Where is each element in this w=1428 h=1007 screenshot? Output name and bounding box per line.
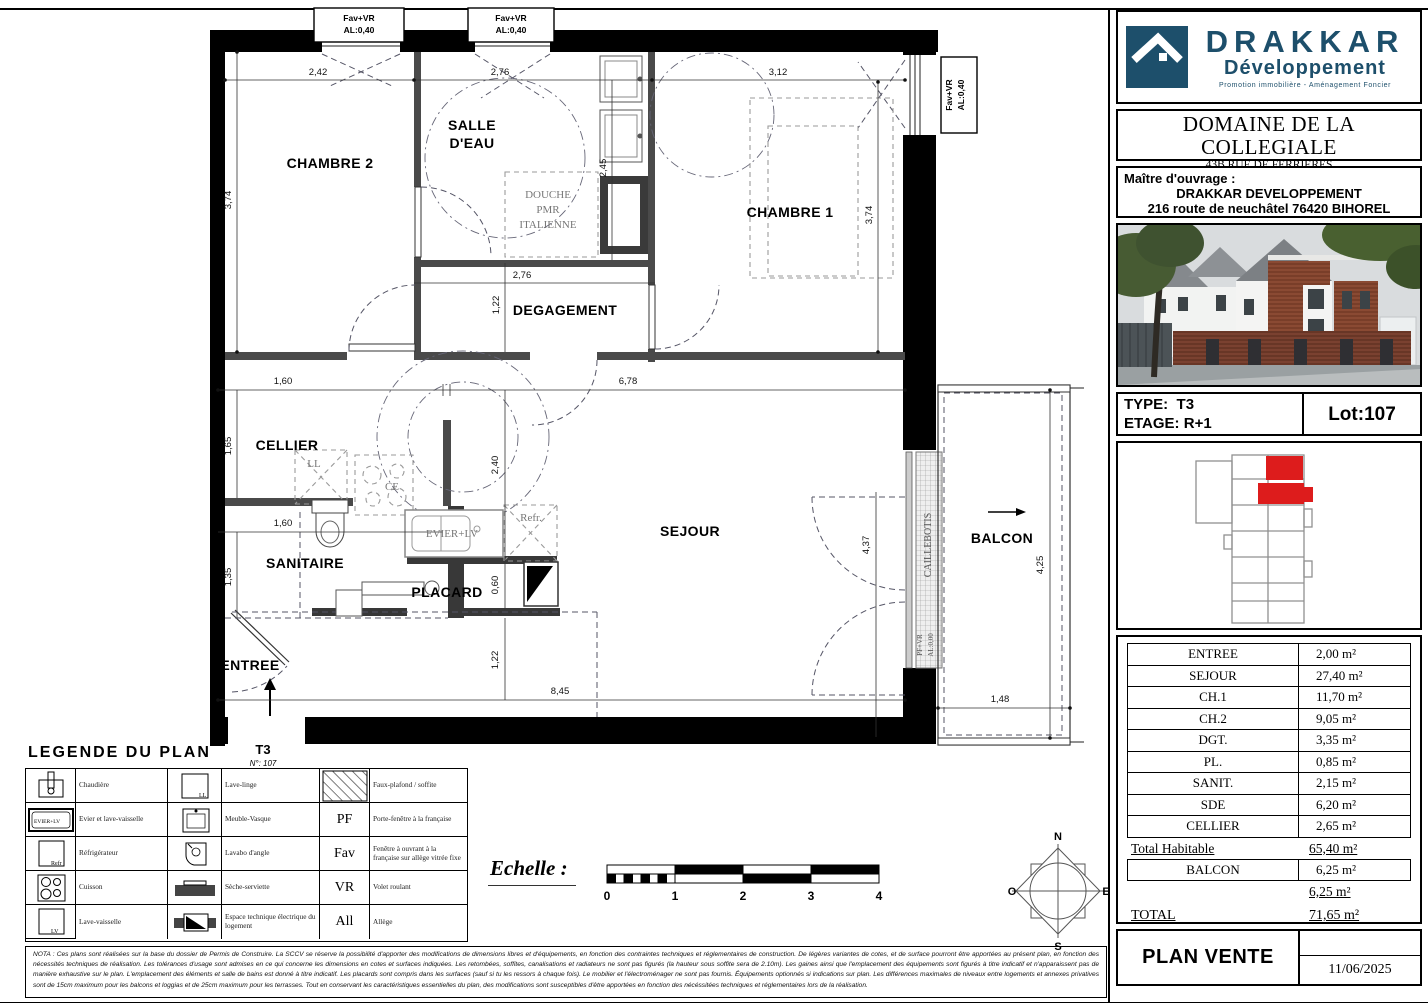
svg-text:2: 2 (740, 889, 747, 903)
dimension-lines (216, 50, 1072, 740)
window-label: AL:0,40 (496, 25, 527, 35)
document-title-box: PLAN VENTE 11/06/2025 (1116, 929, 1422, 986)
lot-number: Lot:107 (1302, 394, 1420, 436)
svg-text:LL: LL (307, 458, 321, 470)
svg-text:LL: LL (199, 793, 207, 799)
svg-text:Refr.: Refr. (520, 512, 542, 524)
svg-text:2,42: 2,42 (309, 67, 328, 78)
type-value: T3 (1177, 396, 1195, 415)
svg-text:1,35: 1,35 (223, 568, 234, 587)
legend-label: Meuble-Vasque (222, 803, 320, 837)
svg-text:1,60: 1,60 (274, 518, 293, 529)
type-label: TYPE: (1124, 396, 1168, 415)
logo-tagline: Promotion immobilière - Aménagement Fonc… (1219, 82, 1391, 89)
fridge-icon: Refr (26, 837, 76, 871)
table-row: DGT.3,35 m² (1127, 729, 1411, 752)
annex-total-row: 6,25 m² (1127, 881, 1411, 903)
svg-text:DOUCHE: DOUCHE (525, 189, 571, 201)
svg-text:2,76: 2,76 (513, 270, 532, 281)
key-plan (1116, 441, 1422, 630)
legend-title: LEGENDE DU PLAN (28, 744, 211, 762)
svg-text:1,22: 1,22 (491, 296, 502, 315)
drakkar-house-icon (1126, 26, 1188, 88)
washer-icon: LL (168, 769, 222, 803)
window-label: AL:0,40 (956, 79, 966, 110)
legend-label: Porte-fenêtre à la française (370, 803, 467, 837)
legend-label: Chaudière (76, 769, 168, 803)
svg-text:2,45: 2,45 (598, 159, 609, 178)
windows: Fav+VR AL:0,40 Fav+VR AL:0,40 Fav+VR AL:… (314, 8, 977, 135)
room-label-salle-eau: SALLE (448, 117, 496, 133)
owner-name: DRAKKAR DEVELOPPEMENT (1124, 186, 1414, 201)
exterior-walls (210, 30, 938, 746)
scale-bar: 0 1 2 3 4 (600, 862, 900, 912)
document-date: 11/06/2025 (1300, 956, 1420, 984)
window-label: Fav+VR (495, 13, 526, 23)
balcon-row: BALCON6,25 m² (1127, 859, 1411, 882)
legend-label: Sèche-serviette (222, 871, 320, 905)
owner-label: Maître d'ouvrage : (1124, 171, 1414, 186)
room-label-entree: ENTREE (220, 657, 279, 673)
pf-symbol: PF (320, 803, 370, 837)
svg-text:CAILLEBOTIS: CAILLEBOTIS (923, 513, 934, 577)
vanity-icon (168, 803, 222, 837)
total-habitable-row: Total Habitable65,40 m² (1127, 838, 1411, 860)
svg-text:LV: LV (51, 929, 59, 935)
company-logo: DRAKKAR Développement Promotion immobili… (1116, 10, 1422, 104)
room-label-chambre2: CHAMBRE 2 (287, 155, 374, 171)
svg-text:0,60: 0,60 (490, 576, 501, 595)
table-row: CH.29,05 m² (1127, 708, 1411, 731)
floor-plan-drawing: Fav+VR AL:0,40 Fav+VR AL:0,40 Fav+VR AL:… (0, 0, 1110, 770)
svg-text:1,60: 1,60 (274, 376, 293, 387)
fav-symbol: Fav (320, 837, 370, 871)
all-symbol: All (320, 905, 370, 939)
title-block: DRAKKAR Développement Promotion immobili… (1116, 10, 1422, 986)
unit-type-tag: T3 (255, 742, 270, 757)
window-label: Fav+VR (343, 13, 374, 23)
room-label-balcon: BALCON (971, 530, 1033, 546)
svg-text:2,76: 2,76 (491, 67, 510, 78)
electrical-space-icon (168, 905, 222, 939)
project-box: DOMAINE DE LA COLLEGIALE 43B RUE DE FERR… (1116, 109, 1422, 161)
room-label-placard: PLACARD (411, 584, 482, 600)
total-row: TOTAL71,65 m² (1127, 903, 1411, 929)
areas-table: ENTREE2,00 m² SEJOUR27,40 m² CH.111,70 m… (1116, 635, 1422, 924)
floor-label: ETAGE: (1124, 415, 1180, 434)
svg-text:1,65: 1,65 (223, 437, 234, 456)
room-label-salle-eau: D'EAU (450, 135, 495, 151)
svg-text:2,40: 2,40 (490, 456, 501, 475)
legend-label: Espace technique électrique du logement (222, 905, 320, 939)
svg-text:1: 1 (672, 889, 679, 903)
fixtures (264, 56, 1084, 745)
svg-text:4: 4 (876, 889, 883, 903)
svg-text:ITALIENNE: ITALIENNE (519, 219, 576, 231)
dishwasher-icon: LV (26, 905, 76, 939)
svg-text:3,12: 3,12 (769, 67, 788, 78)
nota-disclaimer: NOTA : Ces plans sont réalisées sur la b… (25, 946, 1107, 998)
compass-west: O (1008, 886, 1017, 898)
soffit-hatch-icon (320, 769, 370, 803)
legend-label: Cuisson (76, 871, 168, 905)
table-row: PL.0,85 m² (1127, 751, 1411, 774)
compass-rose: N S O E (1008, 828, 1110, 952)
svg-text:6,78: 6,78 (619, 376, 638, 387)
corner-basin-icon (168, 837, 222, 871)
room-label-sejour: SEJOUR (660, 523, 720, 539)
towel-dryer-icon (168, 871, 222, 905)
legend-label: Allège (370, 905, 467, 939)
boiler-icon (26, 769, 76, 803)
compass-east: E (1102, 886, 1109, 898)
table-row: SDE6,20 m² (1127, 794, 1411, 817)
balcony-arrow-icon (1016, 508, 1026, 516)
svg-text:3,74: 3,74 (223, 191, 234, 210)
svg-text:0: 0 (604, 889, 611, 903)
owner-address: 216 route de neuchâtel 76420 BIHOREL (1124, 201, 1414, 216)
legend-label: Evier et lave-vaisselle (76, 803, 168, 837)
legend-label: Faux-plafond / soffite (370, 769, 467, 803)
hob-icon (26, 871, 76, 905)
svg-text:3,74: 3,74 (864, 206, 875, 225)
scale-title: Echelle : (488, 856, 576, 886)
room-label-cellier: CELLIER (256, 437, 319, 453)
legend-table: Chaudière LL Lave-linge Faux-plafond / s… (25, 768, 468, 942)
room-label-degagement: DEGAGEMENT (513, 302, 617, 318)
table-row: SANIT.2,15 m² (1127, 772, 1411, 795)
project-name: DOMAINE DE LA COLLEGIALE (1118, 113, 1420, 159)
svg-text:EVIER+LV: EVIER+LV (426, 528, 478, 540)
floor-value: R+1 (1184, 415, 1212, 434)
legend-label: Lave-vaisselle (76, 905, 168, 939)
svg-text:EVIER+LV: EVIER+LV (34, 819, 60, 825)
table-row: CH.111,70 m² (1127, 686, 1411, 709)
vr-symbol: VR (320, 871, 370, 905)
room-label-chambre1: CHAMBRE 1 (747, 204, 834, 220)
legend-label: Fenêtre à ouvrant à la française sur all… (370, 837, 467, 871)
legend-label: Réfrigérateur (76, 837, 168, 871)
turning-circles (377, 53, 774, 523)
svg-text:1,22: 1,22 (490, 651, 501, 670)
table-row: CELLIER2,65 m² (1127, 815, 1411, 838)
window-label: AL:0,40 (344, 25, 375, 35)
table-row: ENTREE2,00 m² (1127, 643, 1411, 666)
svg-text:4,37: 4,37 (861, 536, 872, 555)
logo-name: DRAKKAR (1206, 26, 1405, 57)
svg-text:CE: CE (385, 481, 399, 493)
svg-text:PMR: PMR (536, 204, 560, 216)
document-title: PLAN VENTE (1118, 931, 1298, 984)
entrance-arrow-icon (264, 678, 276, 690)
owner-box: Maître d'ouvrage : DRAKKAR DEVELOPPEMENT… (1116, 166, 1422, 218)
legend-label: Lave-linge (222, 769, 320, 803)
logo-subtitle: Développement (1224, 57, 1386, 79)
page-bottom-border (0, 1002, 1428, 1003)
plan-vente-sheet: Fav+VR AL:0,40 Fav+VR AL:0,40 Fav+VR AL:… (0, 0, 1428, 1007)
room-label-sanitaire: SANITAIRE (266, 555, 344, 571)
svg-text:4,25: 4,25 (1035, 556, 1046, 575)
svg-text:1,48: 1,48 (991, 694, 1010, 705)
legend-label: Volet roulant (370, 871, 467, 905)
svg-text:PF+VR: PF+VR (916, 634, 924, 656)
revision-cell (1300, 931, 1420, 956)
unit-number-tag: N°: 107 (250, 759, 277, 768)
legend-label: Lavabo d'angle (222, 837, 320, 871)
sink-dishwasher-icon: EVIER+LV (26, 803, 76, 837)
svg-text:3: 3 (808, 889, 815, 903)
svg-text:AL:0,00: AL:0,00 (927, 633, 935, 657)
svg-text:Refr: Refr (51, 860, 62, 867)
window-label: Fav+VR (944, 79, 954, 110)
building-rendering (1116, 223, 1422, 387)
table-row: SEJOUR27,40 m² (1127, 665, 1411, 688)
unit-type-box: TYPE: T3 ETAGE: R+1 Lot:107 (1116, 392, 1422, 436)
compass-north: N (1054, 831, 1062, 843)
svg-text:8,45: 8,45 (551, 686, 570, 697)
